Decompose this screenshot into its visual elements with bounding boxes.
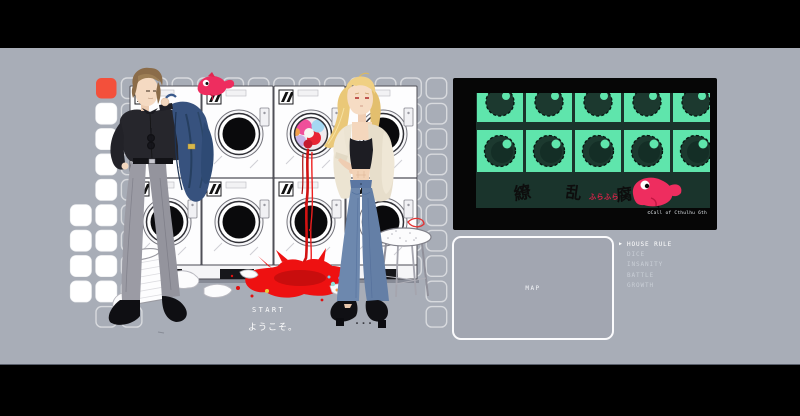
menu-item-label: BATTLE [627, 272, 654, 279]
laundromat-illustration [0, 48, 460, 364]
screen-content: 繚乱ふらふら腐蝕 [476, 88, 717, 211]
copyright-text: ©Call of Cthulhu 6th [648, 210, 707, 216]
man-shoe [162, 296, 187, 322]
jacket-tag [188, 144, 195, 149]
title-kanji: 乱 [564, 182, 583, 203]
yellow-dot [265, 289, 269, 293]
title-screen-panel: 繚乱ふらふら腐蝕©Call of Cthulhu 6th [453, 78, 717, 230]
tube-top [350, 138, 373, 169]
map-panel-label: MAP [525, 285, 540, 292]
menu-cursor-icon: ▶ [619, 241, 627, 247]
start-button[interactable]: START [252, 306, 285, 314]
title-kanji: 腐 [615, 184, 633, 205]
title-kanji: 繚 [512, 181, 532, 205]
washing-machine [274, 178, 345, 265]
menu-item-house-rule[interactable]: ▶HOUSE RULE [619, 239, 672, 249]
menu-item-growth[interactable]: GROWTH [619, 280, 672, 290]
menu-item-insanity[interactable]: INSANITY [619, 260, 672, 270]
welcome-text: ようこそ。 [248, 320, 298, 333]
washing-machine [202, 178, 273, 265]
menu-item-dice[interactable]: DICE [619, 249, 672, 259]
game-room: 繚乱ふらふら腐蝕©Call of Cthulhu 6th MAP ▶HOUSE … [0, 0, 800, 416]
title-screen-art: 繚乱ふらふら腐蝕©Call of Cthulhu 6th [453, 78, 717, 230]
menu-item-label: HOUSE RULE [627, 241, 672, 248]
game-stage: 繚乱ふらふら腐蝕©Call of Cthulhu 6th MAP ▶HOUSE … [0, 48, 800, 365]
menu-item-label: GROWTH [627, 282, 654, 289]
menu-item-label: INSANITY [627, 261, 663, 268]
map-panel[interactable]: MAP [452, 236, 614, 340]
title-red-script: ふらふら [589, 193, 619, 201]
menu-item-battle[interactable]: BATTLE [619, 270, 672, 280]
menu-item-label: DICE [627, 251, 645, 258]
ellipsis-text: ... [354, 316, 374, 327]
menu-panel: ▶HOUSE RULEDICEINSANITYBATTLEGROWTH [619, 239, 672, 290]
